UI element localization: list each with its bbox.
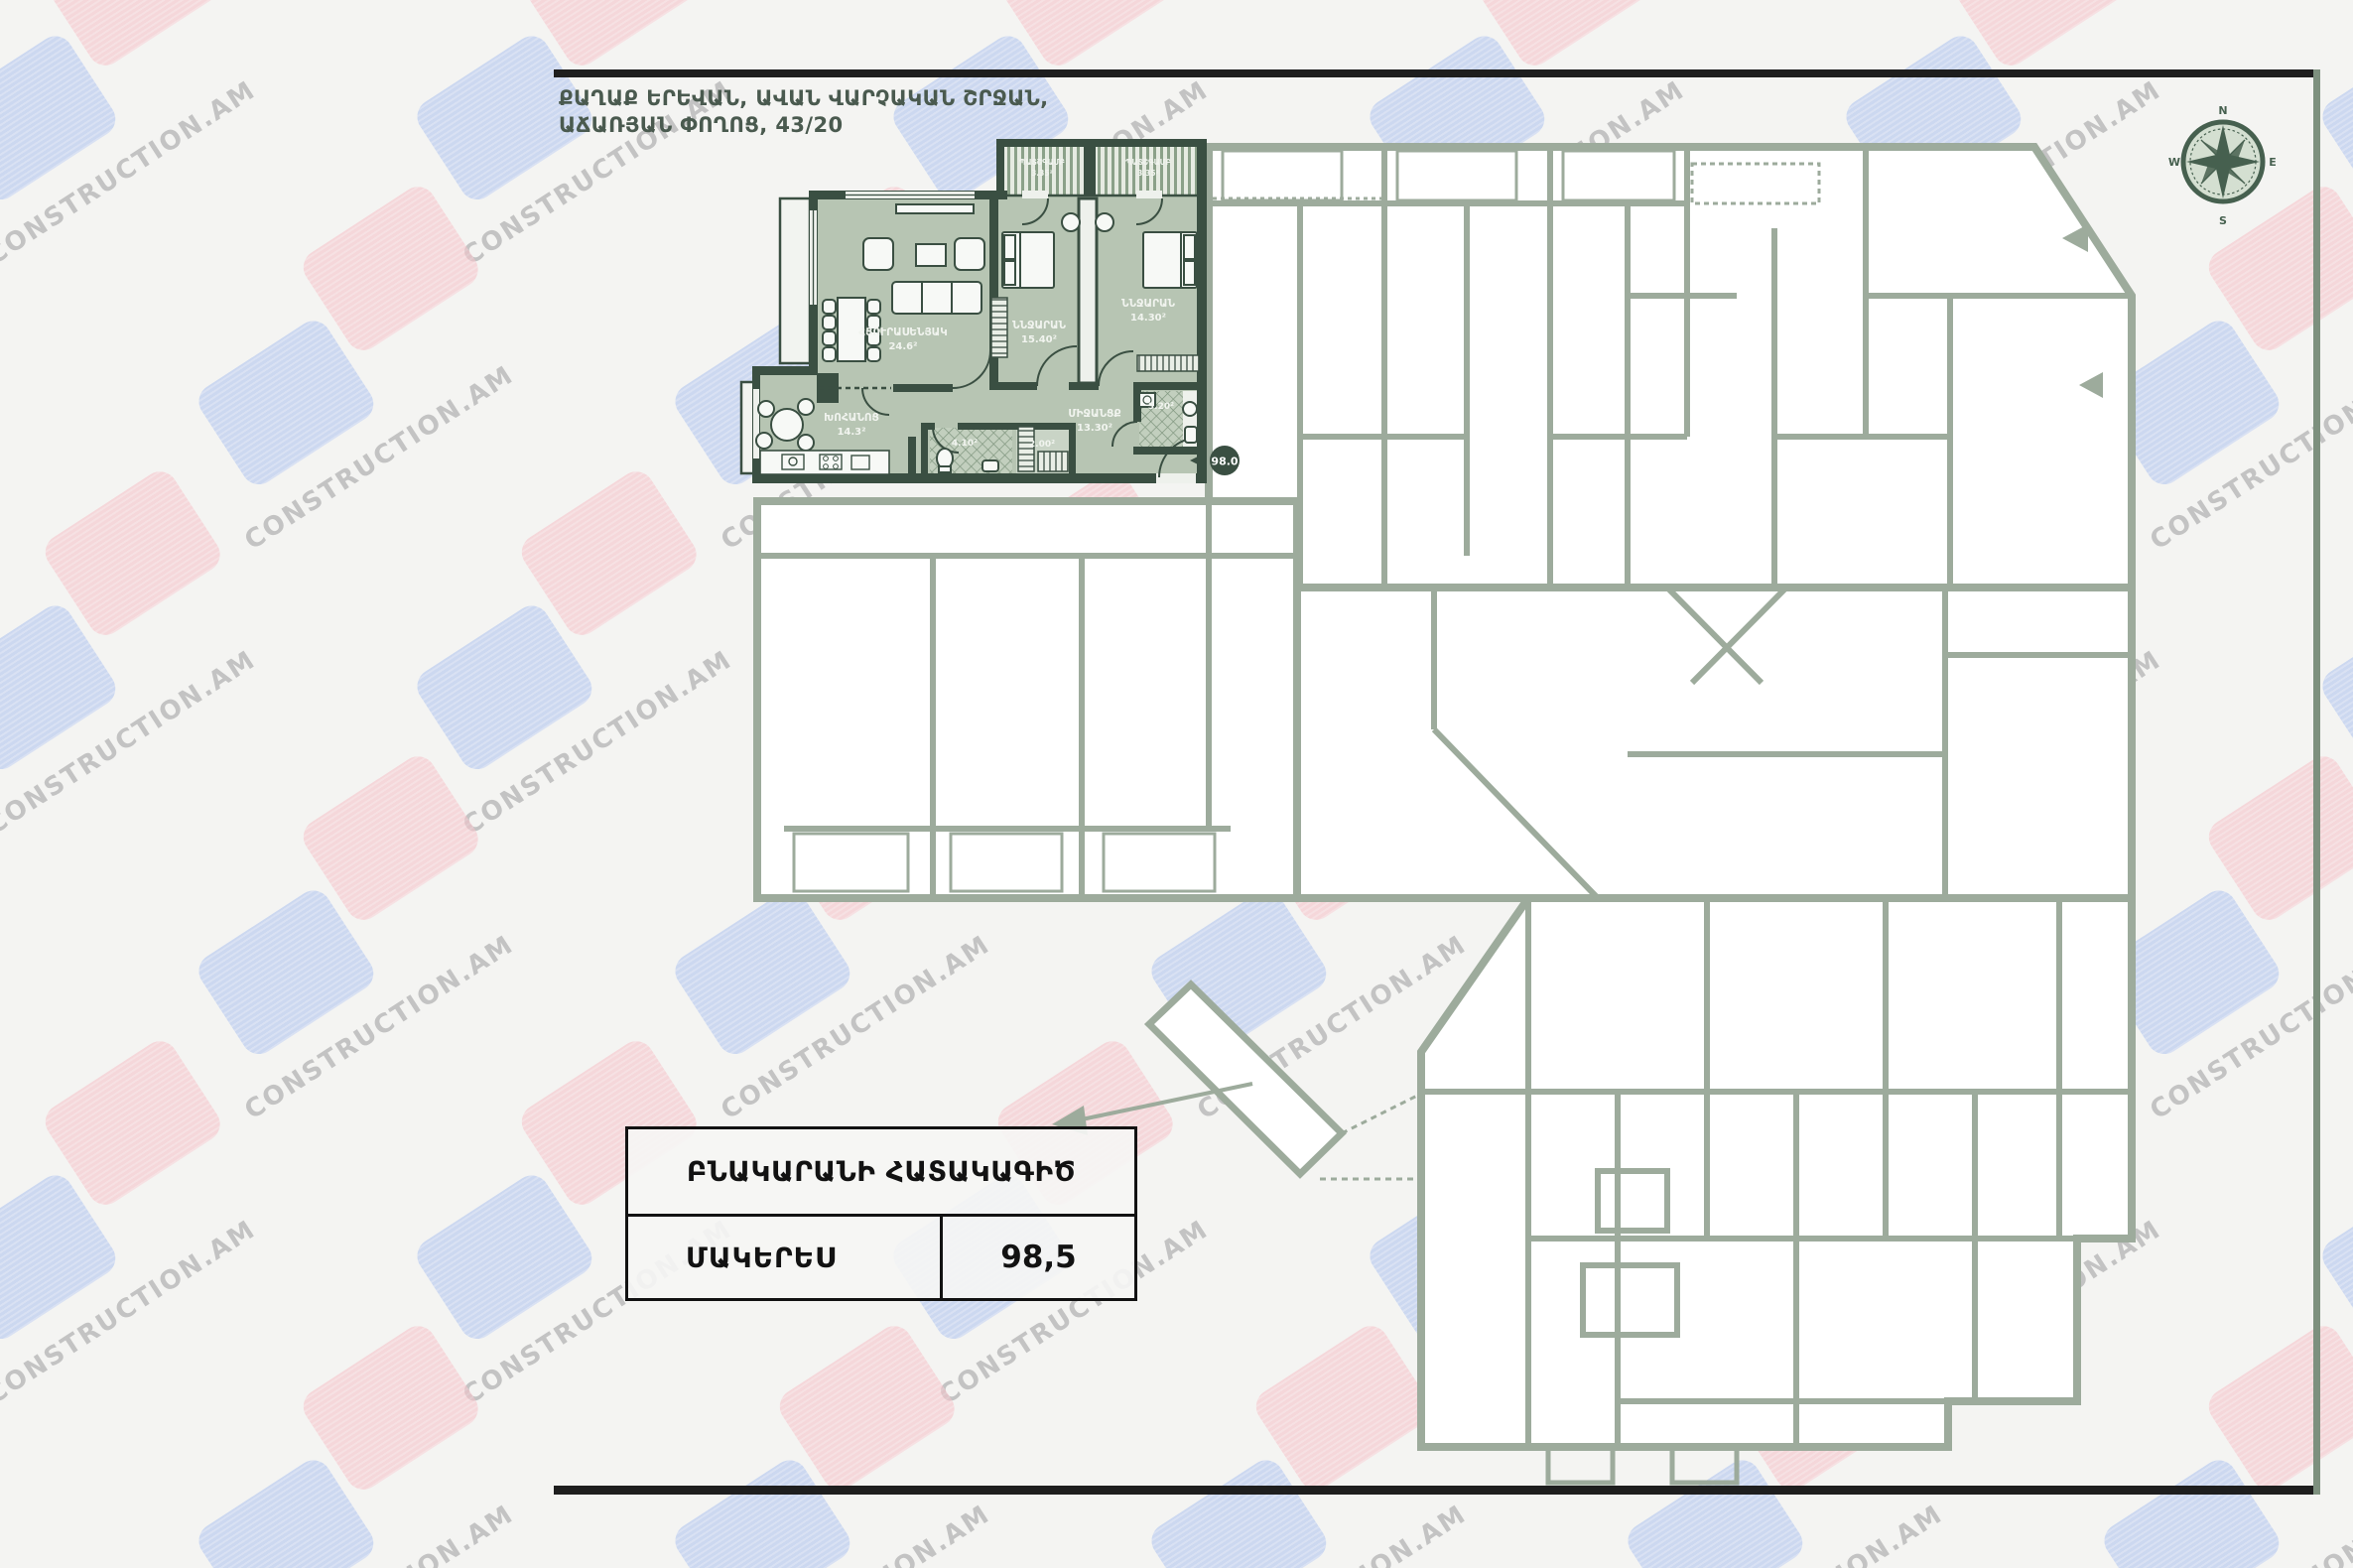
- shaft: [1079, 198, 1097, 383]
- tv-icon: [896, 204, 974, 213]
- armchair-icon: [955, 238, 984, 270]
- apartment-info-table: ԲՆԱԿԱՐԱՆԻ ՀԱՏԱԿԱԳԻԾ ՄԱԿԵՐԵՍ 98,5: [625, 1126, 1137, 1301]
- room-area: 3.35²: [1031, 169, 1053, 178]
- room-label: ՆՆՋԱՐԱՆ: [1012, 320, 1067, 331]
- info-table-row: ՄԱԿԵՐԵՍ 98,5: [628, 1217, 1134, 1298]
- coffee-table-icon: [916, 244, 946, 266]
- room-area: 2.00²: [1029, 440, 1055, 450]
- address-line-1: ՔԱՂԱՔ ԵՐԵՎԱՆ, ԱՎԱՆ ՎԱՐՉԱԿԱՆ ՇՐՋԱՆ,: [559, 85, 1049, 112]
- room-area: 14.30²: [1130, 313, 1166, 324]
- sink-icon: [1183, 402, 1197, 416]
- room-label: ՊԱՏՇԳԱՄԲ: [1019, 158, 1065, 167]
- kitchen-table-icon: [771, 409, 803, 441]
- page: CONSTRUCTION.AMCONSTRUCTION.AMCONSTRUCTI…: [0, 0, 2353, 1568]
- room-area: 15.40²: [1021, 334, 1057, 345]
- area-value: 98,5: [943, 1217, 1134, 1298]
- address-line-2: ԱՃԱՌՅԱՆ ՓՈՂՈՑ, 43/20: [559, 112, 1049, 139]
- sofa-icon: [892, 282, 981, 314]
- sink-icon: [1096, 213, 1113, 231]
- info-table-header: ԲՆԱԿԱՐԱՆԻ ՀԱՏԱԿԱԳԻԾ: [628, 1129, 1134, 1217]
- address-title: ՔԱՂԱՔ ԵՐԵՎԱՆ, ԱՎԱՆ ՎԱՐՉԱԿԱՆ ՇՐՋԱՆ, ԱՃԱՌՅ…: [559, 85, 1049, 139]
- room-area: 13.30²: [1077, 423, 1112, 434]
- bottom-rule: [554, 1486, 2316, 1495]
- compass-e: E: [2269, 156, 2277, 169]
- apartment-unit[interactable]: ՀՅՈՒՐԱՍԵՆՅԱԿ 24.6² ՆՆՋԱՐԱՆ 15.40² ՆՆՋԱՐԱ…: [741, 139, 1240, 483]
- compass-s: S: [2219, 214, 2227, 227]
- toilet-icon: [1185, 427, 1197, 443]
- top-rule: [554, 69, 2316, 77]
- room-area: 3.35²: [1137, 169, 1159, 178]
- total-area-value: 98.0: [1211, 456, 1238, 468]
- compass-n: N: [2218, 104, 2227, 117]
- room-area: 24.6²: [888, 341, 917, 352]
- right-rule: [2313, 69, 2320, 1495]
- sink-icon: [1062, 213, 1080, 231]
- area-label: ՄԱԿԵՐԵՍ: [628, 1217, 943, 1298]
- room-label: ՊԱՏՇԳԱՄԲ: [1125, 158, 1171, 167]
- room-area: 4.10²: [952, 439, 978, 449]
- room-label: ԽՈՀԱՆՈՑ: [824, 412, 879, 424]
- room-label: ՄԻՋԱՆՑՔ: [1068, 408, 1120, 420]
- bottom-bumps: [1548, 1447, 1737, 1483]
- room-label: ՆՆՋԱՐԱՆ: [1121, 298, 1176, 310]
- room-area: 3.20²: [1148, 402, 1174, 412]
- compass-w: W: [2168, 156, 2180, 169]
- top-wing-outline: [1209, 147, 2132, 588]
- floor-plan-drawing: ՀՅՈՒՐԱՍԵՆՅԱԿ 24.6² ՆՆՋԱՐԱՆ 15.40² ՆՆՋԱՐԱ…: [0, 0, 2353, 1568]
- room-area: 14.3²: [837, 427, 865, 438]
- compass-rose: N S W E: [2168, 104, 2277, 227]
- armchair-icon: [863, 238, 893, 270]
- sink-icon: [982, 460, 998, 471]
- room-label: ՀՅՈՒՐԱՍԵՆՅԱԿ: [858, 327, 947, 338]
